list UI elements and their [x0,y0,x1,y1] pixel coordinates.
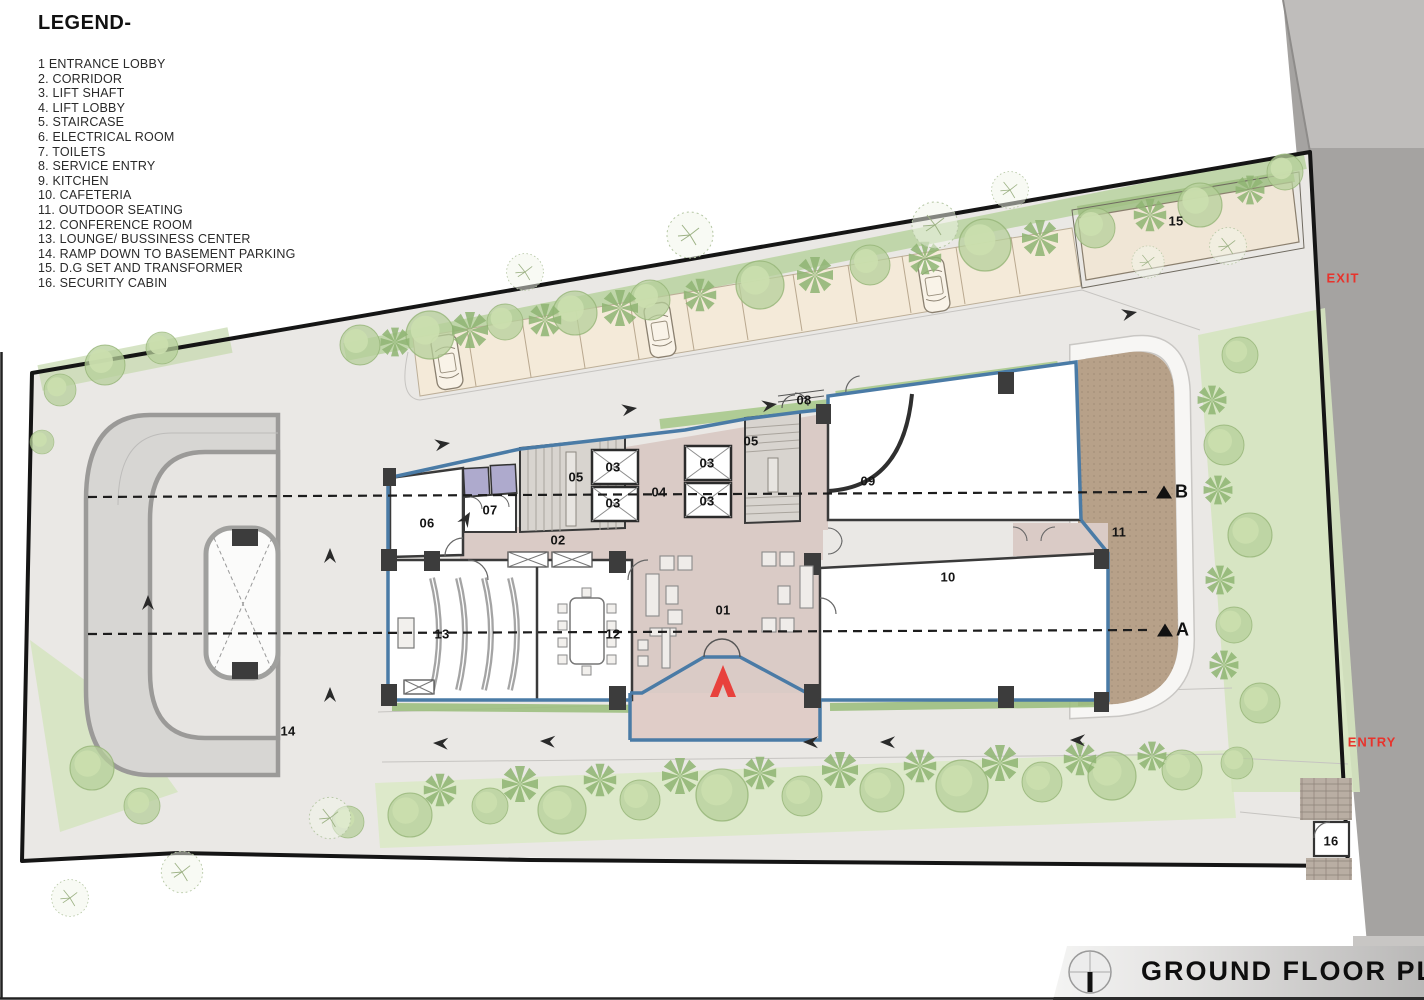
legend-item-6: 6. ELECTRICAL ROOM [38,130,296,145]
legend-item-5: 5. STAIRCASE [38,115,296,130]
legend-item-1: 1 ENTRANCE LOBBY [38,57,296,72]
legend: LEGEND- 1 ENTRANCE LOBBY2. CORRIDOR3. LI… [38,12,296,291]
legend-item-15: 15. D.G SET AND TRANSFORMER [38,261,296,276]
ramp-island [206,528,278,678]
legend-item-11: 11. OUTDOOR SEATING [38,203,296,218]
ground-floor-plan-sheet: LEGEND- 1 ENTRANCE LOBBY2. CORRIDOR3. LI… [0,0,1424,1000]
sheet-title: GROUND FLOOR PLAN [1141,956,1424,987]
legend-list: 1 ENTRANCE LOBBY2. CORRIDOR3. LIFT SHAFT… [38,57,296,291]
north-indicator-icon [1066,948,1114,996]
legend-item-4: 4. LIFT LOBBY [38,101,296,116]
legend-item-10: 10. CAFETERIA [38,188,296,203]
legend-item-3: 3. LIFT SHAFT [38,86,296,101]
entry-vestibule [630,693,820,740]
room-toilets [463,464,516,532]
legend-item-2: 2. CORRIDOR [38,72,296,87]
security-cabin [1314,822,1349,856]
legend-item-12: 12. CONFERENCE ROOM [38,218,296,233]
staircase-east [745,412,800,523]
basement-ramp [86,415,278,775]
legend-title: LEGEND- [38,12,296,35]
legend-item-8: 8. SERVICE ENTRY [38,159,296,174]
rooms-13-12 [388,552,648,700]
legend-item-7: 7. TOILETS [38,145,296,160]
legend-item-16: 16. SECURITY CABIN [38,276,296,291]
room-electrical [390,468,463,557]
legend-item-14: 14. RAMP DOWN TO BASEMENT PARKING [38,247,296,262]
legend-item-9: 9. KITCHEN [38,174,296,189]
legend-item-13: 13. LOUNGE/ BUSSINESS CENTER [38,232,296,247]
